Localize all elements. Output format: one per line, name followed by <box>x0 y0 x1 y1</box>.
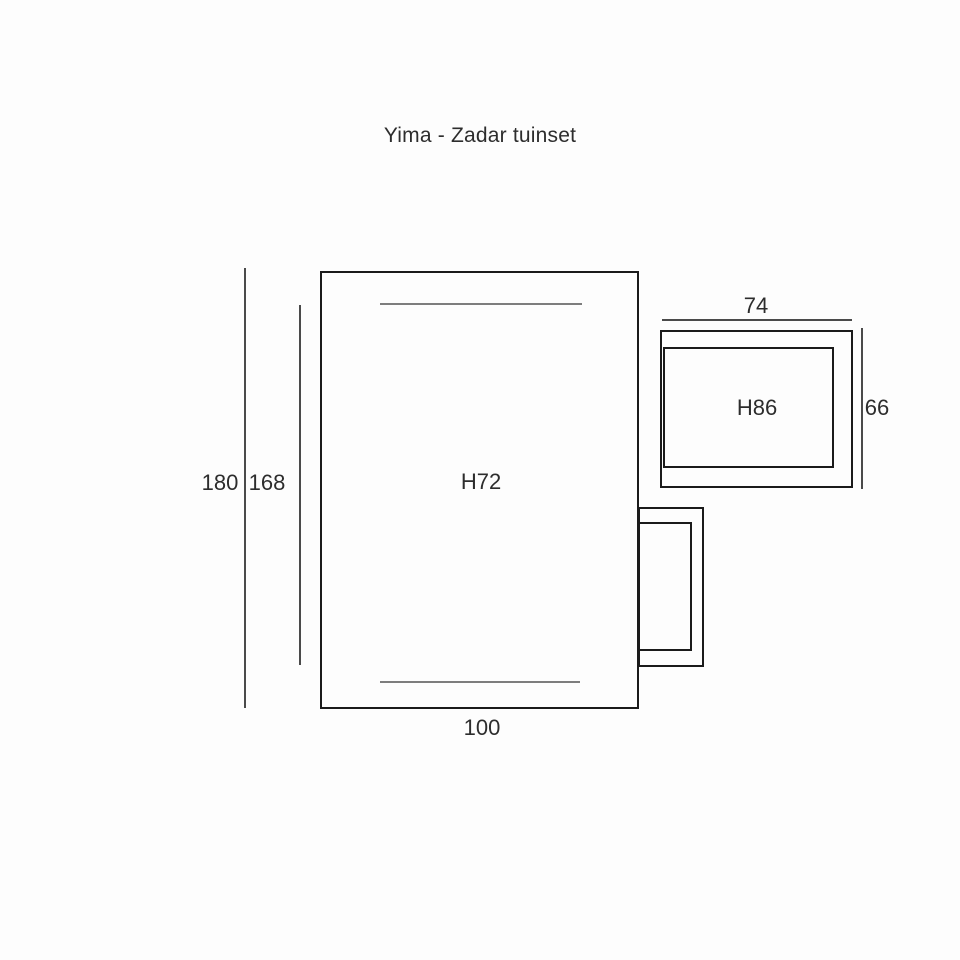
dimension-value-table-width: 100 <box>464 717 501 739</box>
dimension-line-inner-height <box>299 305 301 665</box>
dimension-value-chair-width: 74 <box>744 295 768 317</box>
dimension-diagram: Yima - Zadar tuinset H72 180 168 100 H86… <box>0 0 960 960</box>
table-slat-line-top <box>380 303 582 305</box>
dimension-value-outer-height: 180 <box>202 472 239 494</box>
dimension-line-chair-depth <box>861 328 863 489</box>
dimension-value-inner-height: 168 <box>249 472 286 494</box>
chair-height-label: H86 <box>737 397 777 419</box>
table-slat-line-bottom <box>380 681 580 683</box>
tucked-chair-seat-outline <box>638 522 692 651</box>
dimension-line-outer-height <box>244 268 246 708</box>
dimension-value-chair-depth: 66 <box>865 397 889 419</box>
table-height-label: H72 <box>461 471 501 493</box>
dimension-line-chair-width <box>662 319 852 321</box>
diagram-title: Yima - Zadar tuinset <box>0 124 960 148</box>
